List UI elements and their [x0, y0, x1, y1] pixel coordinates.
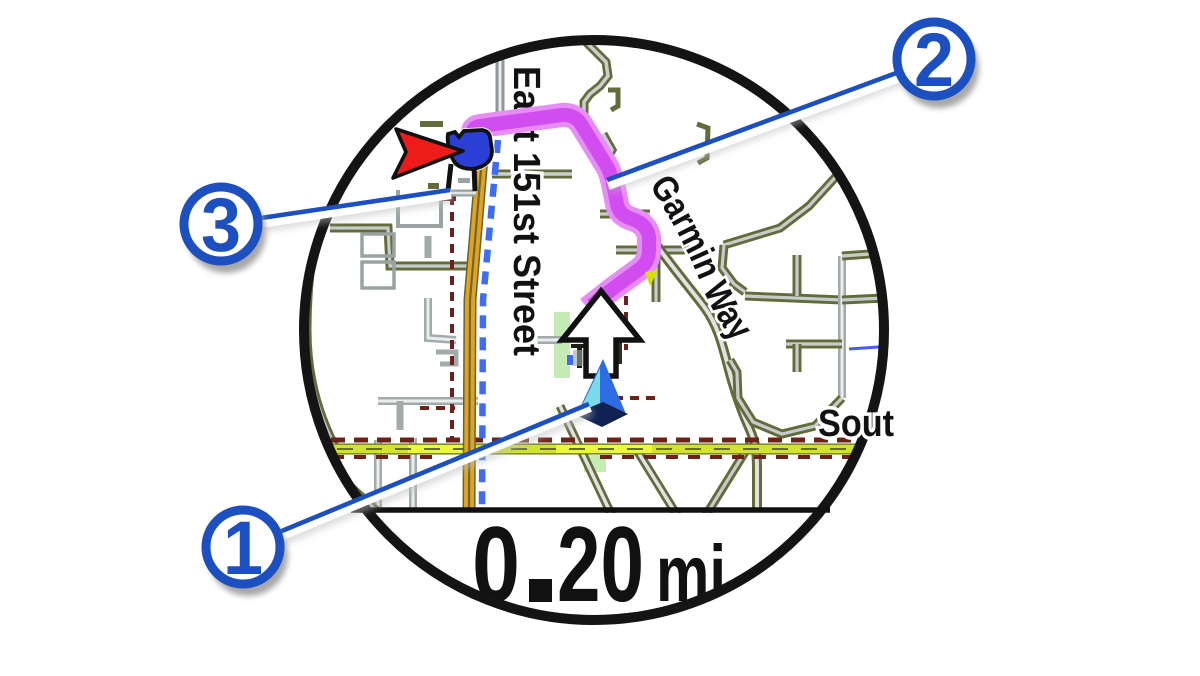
svg-text:Sout: Sout: [818, 403, 894, 445]
svg-text:1: 1: [223, 506, 263, 591]
svg-text:20: 20: [557, 504, 644, 624]
svg-text:2: 2: [914, 18, 954, 103]
svg-text:3: 3: [201, 183, 241, 268]
